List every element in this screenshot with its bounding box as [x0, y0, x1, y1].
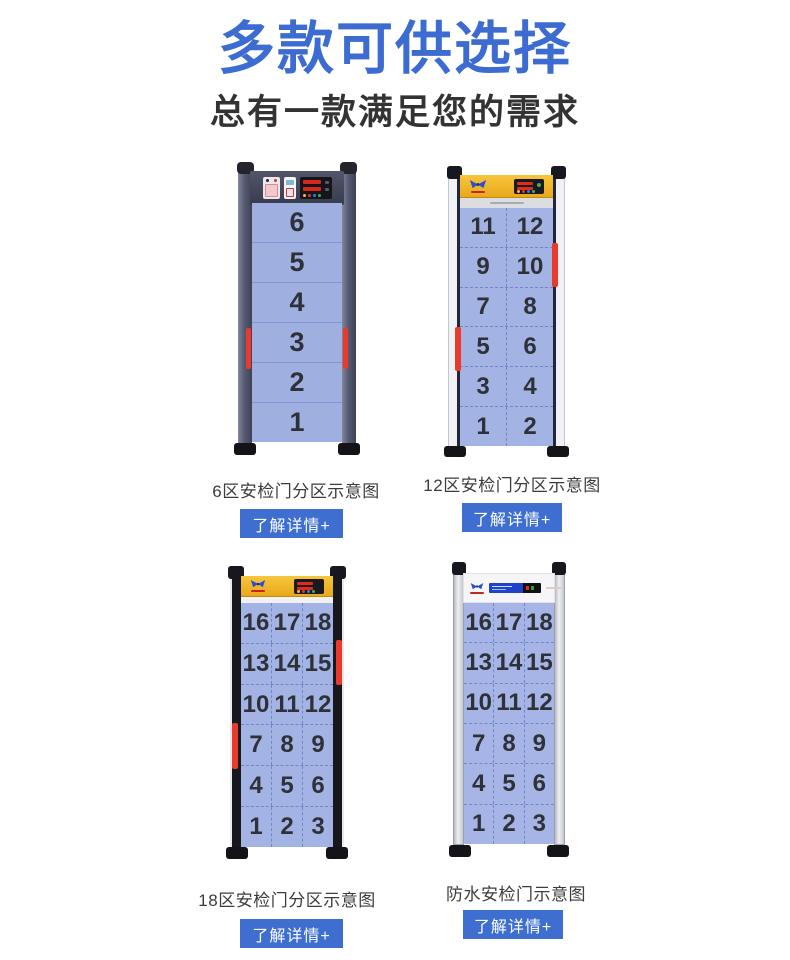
zone-label: 12: [506, 208, 553, 247]
zone-row: 5: [252, 242, 342, 282]
zone-row: 101112: [464, 683, 554, 723]
zone-row: 123: [241, 806, 333, 847]
gate-right-post: [342, 166, 356, 446]
zone-row: 456: [241, 765, 333, 806]
gate-foot: [444, 446, 466, 457]
gate-12zone-image: 111291078563412: [448, 166, 565, 454]
control-module-icon: [263, 177, 280, 199]
zone-label: 13: [241, 644, 271, 684]
gate-18zone-image: 161718131415101112789456123: [230, 566, 344, 856]
zone-label: 2: [506, 407, 553, 446]
zone-label: 8: [506, 288, 553, 327]
zone-label: 8: [493, 724, 523, 763]
zone-label: 16: [241, 603, 271, 643]
zone-label: 9: [460, 248, 506, 287]
zone-label: 17: [271, 603, 302, 643]
gate-foot: [449, 845, 471, 857]
detail-button-6zone[interactable]: 了解详情+: [240, 509, 343, 538]
gate-left-post: [238, 166, 252, 446]
zone-row: 6: [252, 203, 342, 242]
caption-waterproof: 防水安检门示意图: [401, 880, 631, 905]
page-subtitle: 总有一款满足您的需求: [0, 84, 790, 135]
brand-logo-icon: [469, 180, 487, 193]
zone-label: 6: [506, 327, 553, 366]
zone-label: 4: [464, 764, 493, 803]
detail-button-waterproof[interactable]: 了解详情+: [463, 910, 563, 939]
zone-row: 910: [460, 247, 553, 287]
zone-row: 3: [252, 322, 342, 362]
gate-foot: [234, 443, 256, 455]
zone-row: 2: [252, 362, 342, 402]
zone-label: 6: [524, 764, 554, 803]
gate-left-post: [230, 575, 241, 847]
control-module-icon: [284, 177, 296, 199]
gate-right-post: [333, 575, 344, 847]
zone-row: 161718: [241, 603, 333, 643]
zone-label: 15: [302, 644, 333, 684]
zone-label: 4: [506, 367, 553, 406]
zone-label: 10: [464, 684, 493, 723]
alarm-light-strip: [552, 243, 558, 287]
alarm-light-strip: [232, 723, 238, 769]
zone-label: 8: [271, 725, 302, 765]
zone-row: 34: [460, 366, 553, 406]
zone-row: 56: [460, 326, 553, 366]
zone-row: 789: [241, 724, 333, 765]
zone-label: 1: [252, 403, 342, 442]
zone-label: 3: [252, 323, 342, 362]
zone-label: 7: [464, 724, 493, 763]
zone-label: 5: [271, 766, 302, 806]
zone-label: 5: [252, 243, 342, 282]
led-display-icon: [294, 579, 324, 594]
brand-logo-icon: [250, 580, 266, 592]
alarm-light-strip: [336, 640, 342, 685]
zone-label: 11: [460, 208, 506, 247]
gate-foot: [547, 446, 569, 457]
zone-label: 13: [464, 643, 493, 682]
detail-button-12zone[interactable]: 了解详情+: [462, 503, 562, 532]
zone-label: 1: [464, 805, 493, 844]
control-panel: [250, 171, 344, 205]
zone-label: 10: [241, 685, 271, 725]
zone-label: 11: [493, 684, 523, 723]
zone-label: 2: [271, 807, 302, 847]
zone-panel: 161718131415101112789456123: [464, 603, 554, 844]
zone-label: 18: [302, 603, 333, 643]
zone-label: 5: [460, 327, 506, 366]
zone-label: 18: [524, 603, 554, 642]
zone-label: 4: [252, 283, 342, 322]
zone-label: 14: [271, 644, 302, 684]
zone-row: 161718: [464, 603, 554, 642]
zone-row: 78: [460, 287, 553, 327]
promo-page: 多款可供选择 总有一款满足您的需求 654321: [0, 0, 790, 960]
gate-right-post: [554, 569, 565, 845]
led-display-icon: [300, 177, 332, 199]
gate-foot: [338, 443, 360, 455]
zone-label: 3: [302, 807, 333, 847]
zone-row: 1: [252, 402, 342, 442]
zone-label: 10: [506, 248, 553, 287]
zone-label: 11: [271, 685, 302, 725]
page-title: 多款可供选择: [0, 18, 790, 81]
zone-label: 3: [524, 805, 554, 844]
zone-panel: 654321: [252, 203, 342, 442]
gate-foot: [226, 847, 248, 859]
zone-row: 131415: [464, 642, 554, 682]
gate-header: [463, 573, 555, 603]
zone-label: 9: [302, 725, 333, 765]
zone-label: 1: [460, 407, 506, 446]
brand-logo-icon: [470, 583, 484, 594]
zone-label: 16: [464, 603, 493, 642]
zone-row: 789: [464, 723, 554, 763]
gate-waterproof-image: 161718131415101112789456123: [453, 562, 565, 854]
zone-label: 7: [241, 725, 271, 765]
zone-label: 5: [493, 764, 523, 803]
zone-row: 101112: [241, 684, 333, 725]
gate-foot: [547, 845, 569, 857]
gate-header: [241, 576, 333, 597]
zone-label: 1: [241, 807, 271, 847]
caption-12zone: 12区安检门分区示意图: [397, 471, 627, 496]
zone-label: 6: [252, 203, 342, 242]
post-top-cap: [551, 166, 566, 179]
zone-panel: 161718131415101112789456123: [241, 603, 333, 847]
zone-label: 17: [493, 603, 523, 642]
zone-row: 12: [460, 406, 553, 446]
zone-label: 2: [252, 363, 342, 402]
zone-label: 3: [460, 367, 506, 406]
gate-foot: [326, 847, 348, 859]
zone-label: 7: [460, 288, 506, 327]
zone-row: 131415: [241, 643, 333, 684]
zone-label: 2: [493, 805, 523, 844]
zone-label: 9: [524, 724, 554, 763]
caption-6zone: 6区安检门分区示意图: [181, 477, 411, 502]
alarm-light-strip: [455, 327, 461, 371]
gate-left-post: [448, 173, 460, 448]
zone-row: 123: [464, 804, 554, 844]
zone-label: 4: [241, 766, 271, 806]
header-trim: [460, 198, 553, 208]
zone-row: 4: [252, 282, 342, 322]
gate-6zone-image: 654321: [238, 162, 356, 452]
zone-label: 12: [524, 684, 554, 723]
header-fine-print: [546, 587, 562, 589]
zone-panel: 111291078563412: [460, 208, 553, 446]
zone-row: 1112: [460, 208, 553, 247]
caption-18zone: 18区安检门分区示意图: [172, 886, 402, 911]
detail-button-18zone[interactable]: 了解详情+: [240, 919, 343, 948]
gate-header: [460, 175, 553, 198]
zone-label: 14: [493, 643, 523, 682]
lcd-display-icon: [489, 583, 541, 593]
zone-label: 15: [524, 643, 554, 682]
alarm-light-strip: [343, 328, 348, 369]
gate-left-post: [453, 569, 464, 845]
zone-label: 12: [302, 685, 333, 725]
zone-row: 456: [464, 763, 554, 803]
led-display-icon: [514, 179, 544, 194]
gate-right-post: [553, 173, 565, 448]
alarm-light-strip: [246, 328, 251, 369]
zone-label: 6: [302, 766, 333, 806]
